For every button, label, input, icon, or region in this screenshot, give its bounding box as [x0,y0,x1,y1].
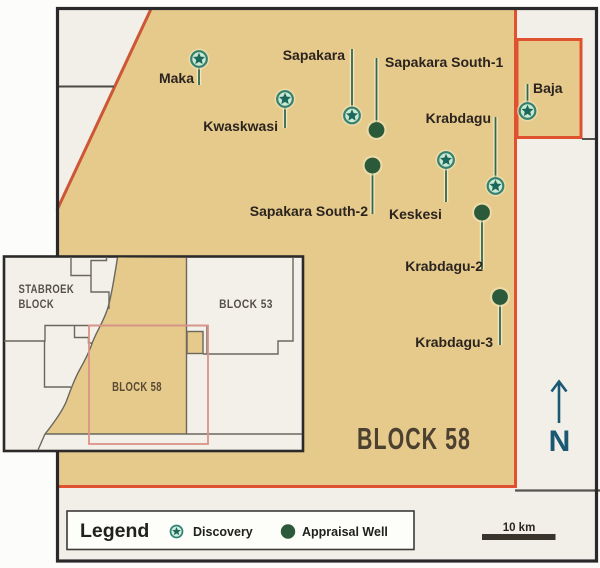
svg-text:BLOCK 53: BLOCK 53 [219,298,273,311]
svg-text:Kwaskwasi: Kwaskwasi [203,118,278,134]
svg-text:Maka: Maka [159,70,194,86]
svg-text:BLOCK 58: BLOCK 58 [357,421,471,456]
svg-text:Discovery: Discovery [193,525,253,539]
svg-text:BLOCK: BLOCK [19,298,55,311]
svg-text:Krabdagu-3: Krabdagu-3 [415,334,493,350]
svg-text:10 km: 10 km [503,522,536,534]
svg-text:Baja: Baja [533,80,563,96]
svg-text:Krabdagu: Krabdagu [426,110,491,126]
svg-text:Krabdagu-2: Krabdagu-2 [405,258,483,274]
svg-text:Legend: Legend [80,520,149,542]
svg-text:Sapakara South-2: Sapakara South-2 [250,203,368,219]
svg-text:Keskesi: Keskesi [389,206,442,222]
svg-text:Appraisal Well: Appraisal Well [302,525,388,539]
svg-text:Sapakara: Sapakara [283,47,345,63]
svg-text:Sapakara South-1: Sapakara South-1 [385,54,503,70]
svg-text:BLOCK 58: BLOCK 58 [112,381,162,395]
svg-text:N: N [549,425,571,458]
svg-text:STABROEK: STABROEK [19,283,75,296]
